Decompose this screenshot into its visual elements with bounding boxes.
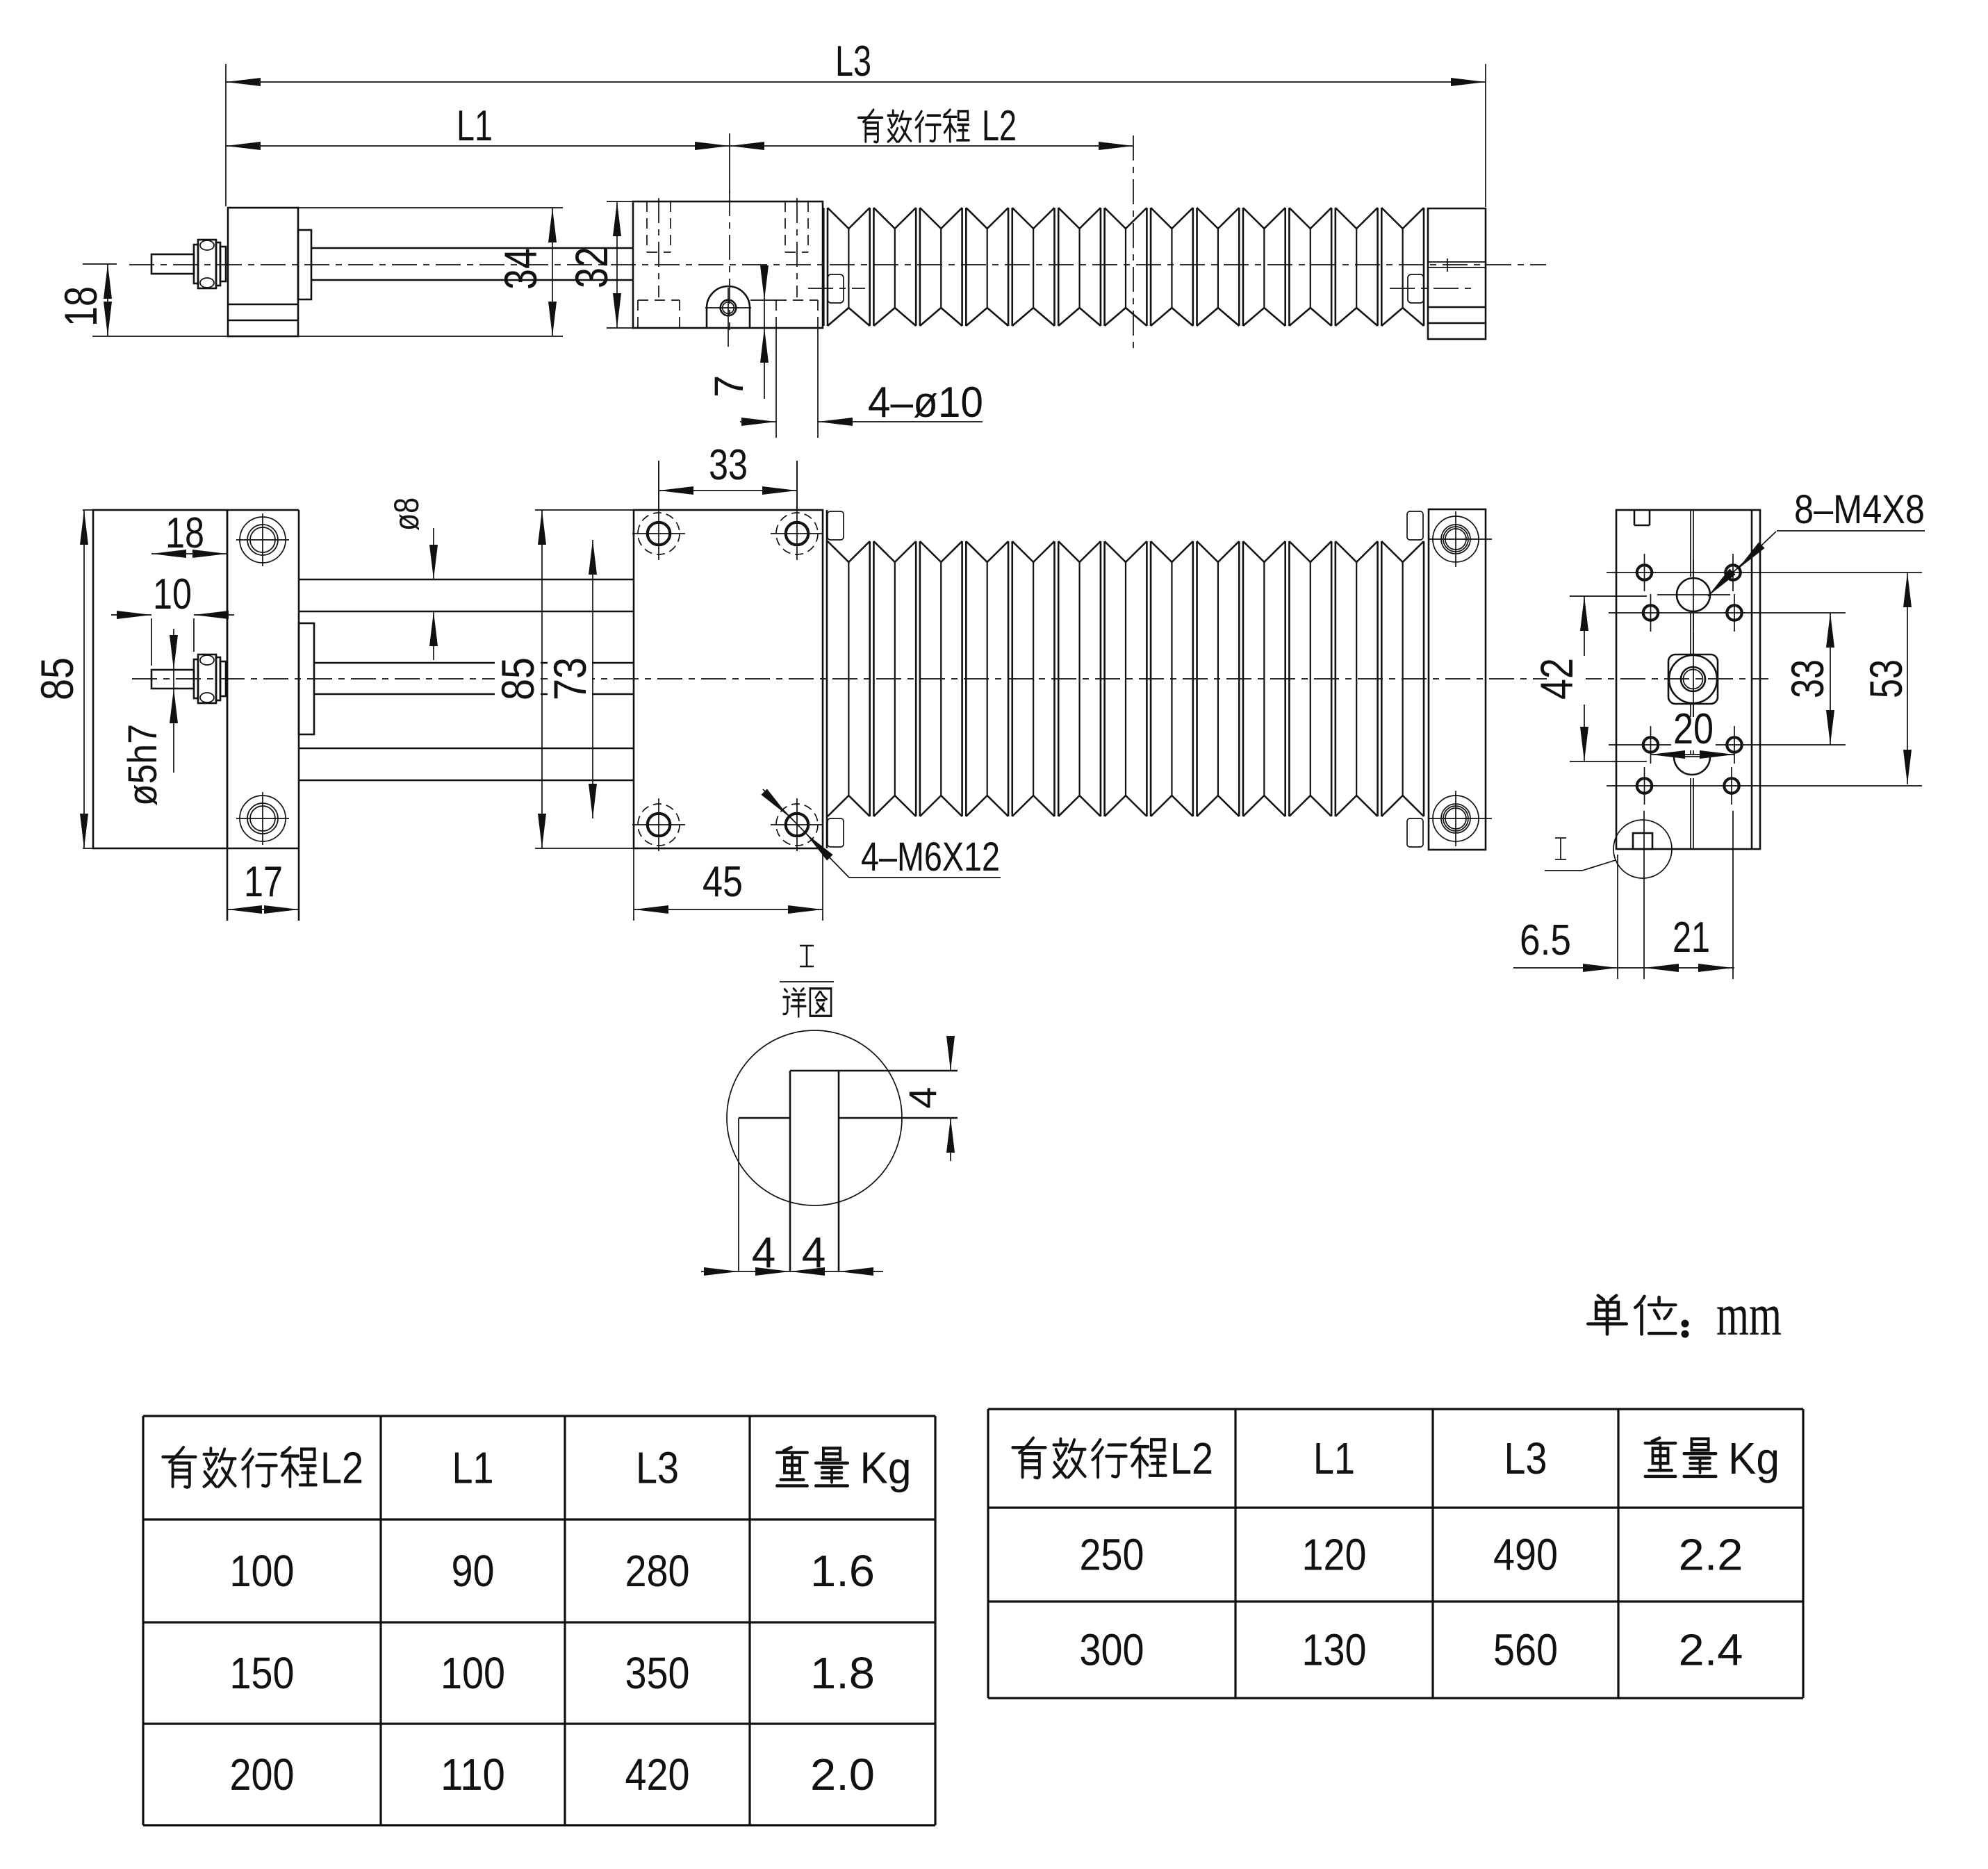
svg-text:2.2: 2.2 — [1679, 1530, 1743, 1580]
svg-text:17: 17 — [244, 858, 283, 906]
svg-text:32: 32 — [566, 247, 617, 288]
svg-text:420: 420 — [625, 1749, 690, 1800]
svg-text:18: 18 — [165, 509, 204, 557]
svg-text:120: 120 — [1302, 1530, 1367, 1580]
svg-text:350: 350 — [625, 1648, 690, 1698]
svg-text:110: 110 — [441, 1749, 505, 1800]
svg-text:490: 490 — [1493, 1530, 1558, 1580]
svg-text:4: 4 — [901, 1087, 944, 1108]
svg-text:18: 18 — [55, 286, 106, 327]
svg-text:4–ø10: 4–ø10 — [868, 379, 983, 427]
svg-text:L1: L1 — [1313, 1433, 1355, 1483]
svg-text:1.6: 1.6 — [810, 1546, 875, 1596]
svg-text:L2: L2 — [982, 102, 1017, 150]
svg-text:34: 34 — [495, 248, 546, 290]
svg-text:L3: L3 — [1504, 1433, 1547, 1483]
svg-text:4: 4 — [802, 1229, 825, 1277]
svg-text:250: 250 — [1080, 1530, 1144, 1580]
svg-text:560: 560 — [1493, 1625, 1558, 1675]
svg-text:L3: L3 — [835, 38, 871, 85]
svg-text:100: 100 — [230, 1546, 295, 1596]
svg-text:20: 20 — [1673, 705, 1714, 753]
svg-text:21: 21 — [1673, 914, 1710, 962]
svg-text:300: 300 — [1080, 1625, 1144, 1675]
svg-text:Kg: Kg — [1728, 1433, 1780, 1483]
svg-text:90: 90 — [452, 1546, 495, 1596]
svg-text:L2: L2 — [1170, 1433, 1213, 1483]
svg-text:150: 150 — [230, 1648, 295, 1698]
svg-text:42: 42 — [1531, 658, 1582, 700]
svg-text:100: 100 — [441, 1648, 505, 1698]
svg-text:2.0: 2.0 — [810, 1749, 875, 1800]
svg-text:mm: mm — [1716, 1281, 1782, 1348]
svg-text:130: 130 — [1302, 1625, 1367, 1675]
svg-text:ø8: ø8 — [387, 497, 426, 531]
svg-text:10: 10 — [153, 570, 192, 618]
svg-text:ø5h7: ø5h7 — [120, 724, 165, 806]
svg-text:53: 53 — [1860, 659, 1912, 698]
svg-text:73: 73 — [544, 657, 595, 700]
svg-text:L3: L3 — [636, 1443, 679, 1493]
svg-text:33: 33 — [709, 441, 748, 489]
svg-text:33: 33 — [1782, 659, 1833, 698]
svg-text:4: 4 — [752, 1229, 775, 1277]
svg-text:45: 45 — [703, 858, 743, 906]
svg-text:Kg: Kg — [860, 1443, 912, 1493]
svg-text:4–M6X12: 4–M6X12 — [861, 834, 1000, 880]
svg-text:L2: L2 — [320, 1443, 363, 1493]
svg-text:200: 200 — [230, 1749, 295, 1800]
svg-text:280: 280 — [625, 1546, 690, 1596]
svg-text:1.8: 1.8 — [810, 1648, 875, 1698]
svg-text:85: 85 — [31, 657, 83, 700]
svg-text:6.5: 6.5 — [1520, 916, 1571, 964]
svg-text:7: 7 — [707, 375, 752, 397]
svg-text:2.4: 2.4 — [1679, 1625, 1743, 1675]
svg-text:85: 85 — [492, 657, 543, 700]
svg-text:8–M4X8: 8–M4X8 — [1794, 487, 1925, 532]
svg-text:L1: L1 — [457, 102, 493, 150]
svg-text:L1: L1 — [452, 1443, 494, 1493]
